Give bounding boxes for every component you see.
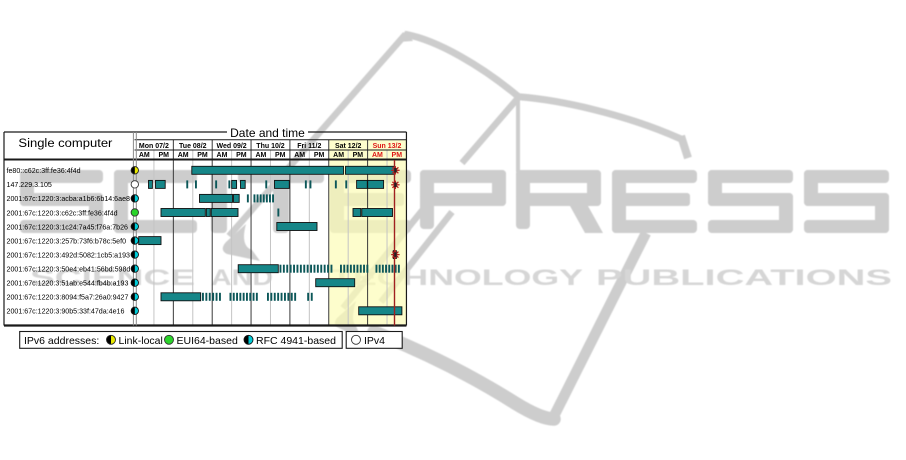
svg-text:2001:67c:1220:3:51ab:e544:fb4b: 2001:67c:1220:3:51ab:e544:fb4b:a193 [7, 280, 129, 288]
svg-text:Sat 12/2: Sat 12/2 [335, 143, 362, 150]
svg-text:2001:67c:1220:3:492d:5082:1cb5: 2001:67c:1220:3:492d:5082:1cb5:a193 [7, 251, 131, 259]
svg-text:AM: AM [372, 152, 383, 159]
svg-text:IPv6 addresses:: IPv6 addresses: [24, 335, 99, 347]
svg-text:Tue 08/2: Tue 08/2 [179, 143, 207, 150]
svg-text:PM: PM [353, 152, 364, 159]
svg-text:fe80::c62c:3ff:fe36:4f4d: fe80::c62c:3ff:fe36:4f4d [7, 167, 81, 175]
svg-text:2001:67c:1220:3:8094:f5a7:26a0: 2001:67c:1220:3:8094:f5a7:26a0:9427 [7, 294, 129, 302]
svg-text:AM: AM [255, 152, 266, 159]
svg-text:AM: AM [178, 152, 189, 159]
svg-text:PM: PM [275, 152, 286, 159]
svg-text:Single computer: Single computer [18, 136, 112, 150]
svg-text:Fri 11/2: Fri 11/2 [297, 143, 321, 150]
svg-text:2001:67c:1220:3:90b5:33f:47da:: 2001:67c:1220:3:90b5:33f:47da:4e16 [7, 308, 125, 316]
svg-text:PM: PM [158, 152, 169, 159]
svg-text:2001:67c:1220:3:acba:a1b6:6b14: 2001:67c:1220:3:acba:a1b6:6b14:6ae8 [7, 195, 131, 203]
svg-text:IPv4: IPv4 [364, 335, 385, 347]
svg-text:AM: AM [294, 152, 305, 159]
svg-text:147.229.3.105: 147.229.3.105 [7, 181, 52, 189]
svg-text:Date and time: Date and time [230, 126, 305, 140]
svg-text:PUBLICATIONS: PUBLICATIONS [596, 265, 892, 290]
svg-text:AM: AM [139, 152, 150, 159]
svg-text:AM: AM [217, 152, 228, 159]
svg-text:Wed 09/2: Wed 09/2 [216, 143, 246, 150]
svg-text:PM: PM [197, 152, 208, 159]
svg-text:2001:67c:1220:3:257b:73f6:b78c: 2001:67c:1220:3:257b:73f6:b78c:5ef0 [7, 237, 127, 245]
svg-text:AM: AM [333, 152, 344, 159]
svg-text:EUI64-based: EUI64-based [177, 335, 238, 347]
svg-text:PM: PM [392, 152, 403, 159]
svg-text:Link-local: Link-local [119, 335, 163, 347]
svg-text:2001:67c:1220:3:50e4:eb41:56bd: 2001:67c:1220:3:50e4:eb41:56bd:598d [7, 266, 131, 274]
svg-text:2001:67c:1220:3:c62c:3ff:fe36:: 2001:67c:1220:3:c62c:3ff:fe36:4f4d [7, 209, 118, 217]
svg-text:Thu 10/2: Thu 10/2 [256, 143, 285, 150]
svg-text:Mon 07/2: Mon 07/2 [139, 143, 169, 150]
svg-text:RFC 4941-based: RFC 4941-based [256, 335, 336, 347]
svg-text:PM: PM [314, 152, 325, 159]
svg-text:2001:67c:1220:3:1c24:7a45:f76a: 2001:67c:1220:3:1c24:7a45:f76a:7b26 [7, 223, 129, 231]
svg-text:PM: PM [236, 152, 247, 159]
svg-text:Sun 13/2: Sun 13/2 [373, 143, 402, 150]
